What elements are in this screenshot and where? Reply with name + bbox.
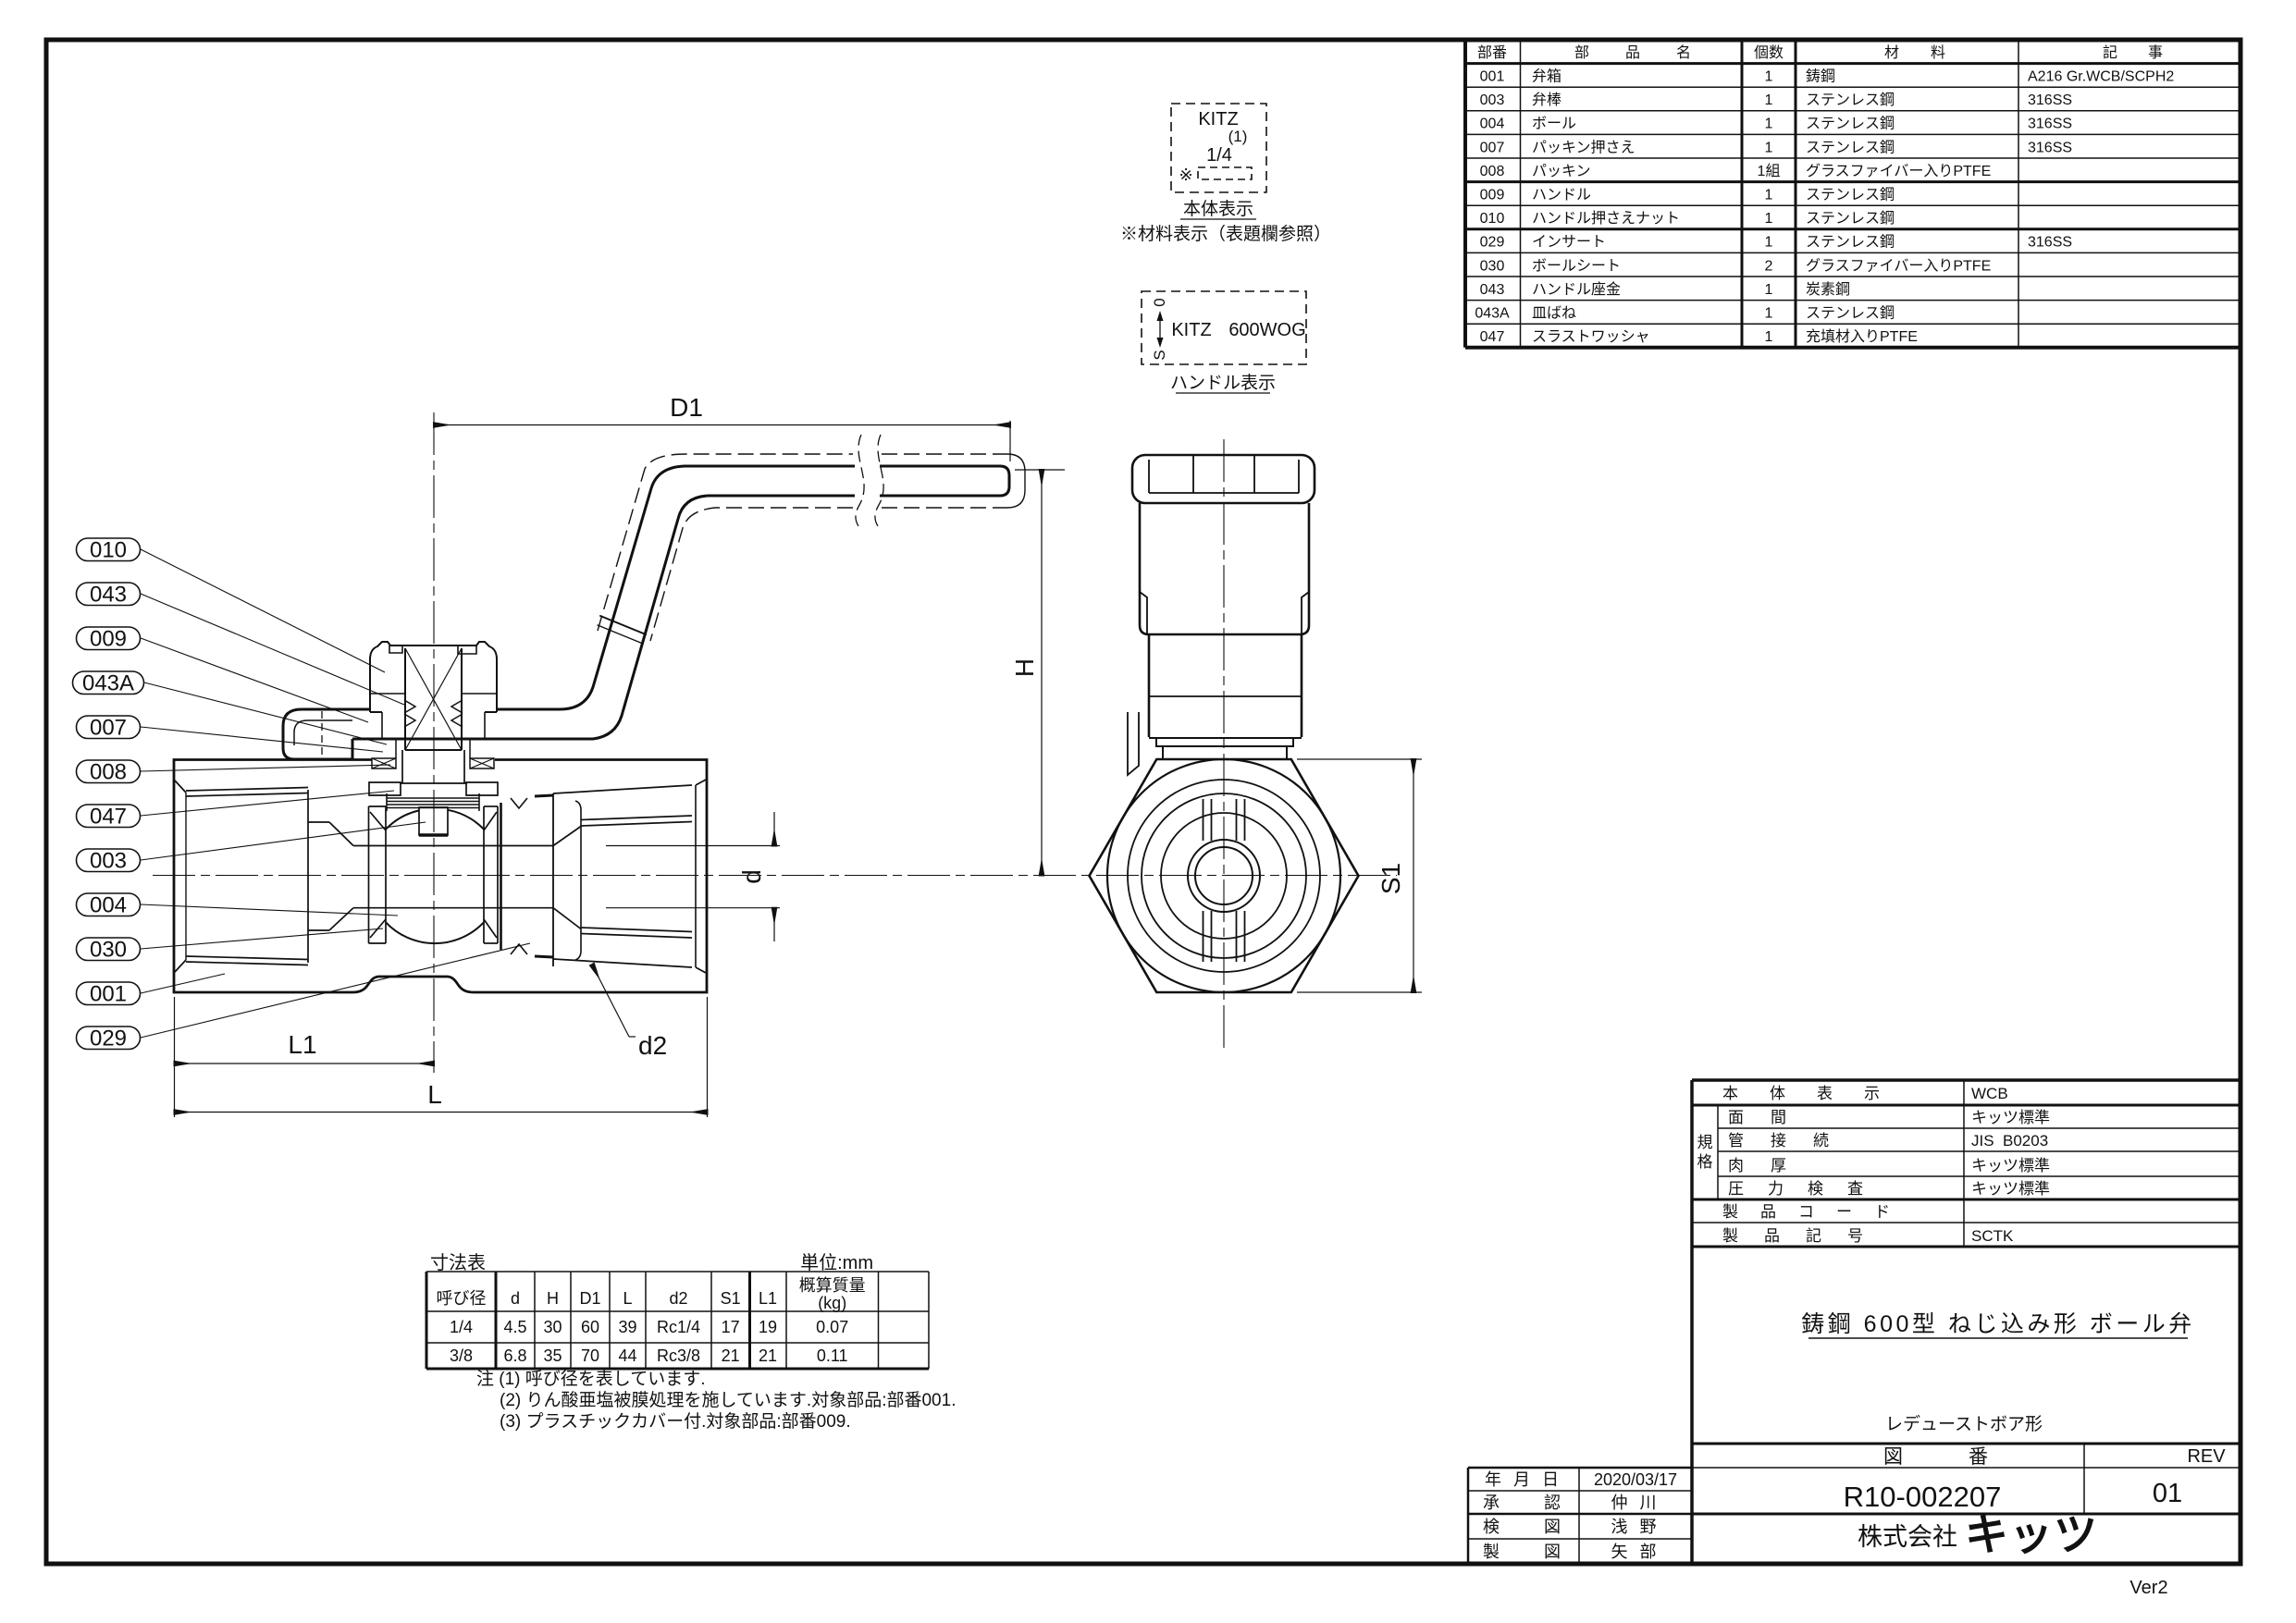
svg-text:ステンレス鋼: ステンレス鋼 [1806, 92, 1895, 108]
svg-text:スラストワッシャ: スラストワッシャ [1532, 329, 1650, 345]
svg-text:材: 材 [1884, 44, 1899, 61]
svg-text:部番: 部番 [1477, 44, 1507, 61]
svg-text:010: 010 [1480, 211, 1505, 227]
svg-text:※: ※ [1179, 166, 1192, 184]
svg-text:製品記号: 製品記号 [1722, 1227, 1889, 1245]
svg-text:003: 003 [1480, 92, 1505, 108]
svg-text:キッツ: キッツ [1965, 1510, 2098, 1559]
svg-text:注 (1) 呼び径を表しています.: 注 (1) 呼び径を表しています. [476, 1369, 706, 1389]
svg-text:浅 野: 浅 野 [1611, 1518, 1660, 1536]
svg-text:d: d [737, 869, 766, 884]
svg-text:001: 001 [1480, 69, 1505, 85]
svg-text:仲 川: 仲 川 [1611, 1494, 1660, 1512]
svg-text:043A: 043A [82, 671, 134, 696]
svg-text:鋳鋼: 鋳鋼 [1806, 68, 1835, 85]
svg-text:047: 047 [1480, 329, 1505, 345]
svg-text:肉厚: 肉厚 [1728, 1157, 1813, 1174]
svg-text:2020/03/17: 2020/03/17 [1594, 1470, 1677, 1489]
svg-text:1/4: 1/4 [450, 1318, 473, 1336]
svg-text:(kg): (kg) [818, 1294, 846, 1312]
svg-text:ステンレス鋼: ステンレス鋼 [1806, 210, 1895, 227]
svg-text:製品コード: 製品コード [1722, 1203, 1912, 1221]
svg-text:図: 図 [1883, 1446, 1903, 1468]
svg-text:1組: 1組 [1758, 163, 1781, 179]
svg-text:L1: L1 [288, 1030, 316, 1059]
svg-text:1: 1 [1765, 140, 1773, 155]
svg-text:矢 部: 矢 部 [1611, 1543, 1660, 1561]
svg-text:呼び径: 呼び径 [437, 1289, 487, 1308]
svg-text:S: S [1151, 350, 1168, 360]
svg-text:L: L [427, 1080, 442, 1109]
svg-text:規: 規 [1697, 1134, 1713, 1151]
svg-text:19: 19 [759, 1318, 777, 1336]
svg-text:品: 品 [1625, 45, 1640, 61]
svg-text:(3) プラスチックカバー付.対象部品:部番009.: (3) プラスチックカバー付.対象部品:部番009. [500, 1411, 851, 1432]
svg-text:316SS: 316SS [2028, 117, 2072, 132]
svg-text:単位:mm: 単位:mm [800, 1252, 873, 1273]
svg-text:ステンレス鋼: ステンレス鋼 [1806, 187, 1895, 203]
svg-text:弁箱: 弁箱 [1532, 68, 1562, 85]
svg-text:004: 004 [90, 893, 127, 918]
svg-text:01: 01 [2153, 1479, 2182, 1508]
svg-text:寸法表: 寸法表 [430, 1252, 486, 1273]
svg-text:1: 1 [1765, 188, 1773, 203]
svg-text:009: 009 [1480, 188, 1505, 203]
svg-text:面間: 面間 [1728, 1109, 1813, 1126]
svg-text:ステンレス鋼: ステンレス鋼 [1806, 305, 1895, 322]
svg-text:管接続: 管接続 [1728, 1132, 1856, 1150]
svg-text:029: 029 [90, 1027, 127, 1051]
svg-text:皿ばね: 皿ばね [1532, 305, 1576, 322]
svg-text:1: 1 [1765, 211, 1773, 227]
svg-text:029: 029 [1480, 235, 1505, 251]
svg-text:ハンドル: ハンドル [1532, 188, 1591, 203]
svg-text:043A: 043A [1475, 306, 1510, 322]
svg-text:(2) りん酸亜塩被膜処理を施しています.対象部品:部番00: (2) りん酸亜塩被膜処理を施しています.対象部品:部番001. [500, 1390, 956, 1410]
svg-text:名: 名 [1676, 44, 1691, 61]
svg-text:D1: D1 [670, 393, 703, 422]
svg-text:316SS: 316SS [2028, 140, 2072, 155]
svg-text:Rc3/8: Rc3/8 [657, 1346, 700, 1365]
svg-text:003: 003 [90, 849, 127, 874]
svg-text:事: 事 [2148, 44, 2163, 61]
svg-text:1: 1 [1765, 92, 1773, 108]
svg-text:0.11: 0.11 [817, 1346, 848, 1365]
svg-text:316SS: 316SS [2028, 92, 2072, 108]
svg-text:充填材入りPTFE: 充填材入りPTFE [1806, 328, 1918, 345]
svg-text:007: 007 [1480, 140, 1505, 155]
svg-text:010: 010 [90, 538, 127, 563]
svg-text:レデューストボア形: レデューストボア形 [1885, 1414, 2043, 1434]
svg-text:d2: d2 [669, 1289, 687, 1308]
svg-text:008: 008 [1480, 164, 1505, 179]
svg-text:パッキン: パッキン [1532, 164, 1591, 179]
svg-text:検 図: 検 図 [1483, 1518, 1564, 1536]
svg-text:1: 1 [1765, 117, 1773, 132]
svg-text:030: 030 [1480, 258, 1505, 274]
svg-text:3/8: 3/8 [450, 1346, 473, 1365]
svg-text:316SS: 316SS [2028, 235, 2072, 251]
svg-text:35: 35 [543, 1346, 562, 1365]
svg-text:1: 1 [1765, 69, 1773, 85]
svg-text:2: 2 [1765, 258, 1773, 274]
svg-text:L: L [623, 1289, 632, 1308]
svg-text:株式会社: 株式会社 [1858, 1523, 1957, 1551]
svg-text:S1: S1 [721, 1289, 741, 1308]
svg-text:d2: d2 [638, 1031, 667, 1060]
svg-text:本体表示: 本体表示 [1183, 199, 1253, 219]
svg-text:WCB: WCB [1971, 1085, 2008, 1102]
svg-text:概算質量: 概算質量 [799, 1276, 866, 1295]
svg-text:4.5: 4.5 [503, 1318, 526, 1336]
svg-text:004: 004 [1480, 117, 1505, 132]
svg-text:21: 21 [759, 1346, 777, 1365]
svg-text:グラスファイバー入りPTFE: グラスファイバー入りPTFE [1806, 257, 1991, 274]
svg-text:H: H [1010, 658, 1039, 677]
svg-text:REV: REV [2187, 1446, 2226, 1467]
svg-text:格: 格 [1697, 1153, 1713, 1171]
svg-text:ボール: ボール [1532, 116, 1576, 132]
svg-text:030: 030 [90, 938, 127, 963]
svg-text:Rc1/4: Rc1/4 [657, 1318, 700, 1336]
svg-text:6.8: 6.8 [503, 1346, 526, 1365]
svg-text:600WOG: 600WOG [1228, 320, 1305, 340]
svg-text:番: 番 [1969, 1446, 1988, 1468]
svg-text:JIS B0203: JIS B0203 [1971, 1132, 2048, 1150]
svg-text:KITZ: KITZ [1198, 109, 1238, 129]
svg-text:KITZ: KITZ [1171, 320, 1211, 340]
svg-text:39: 39 [618, 1318, 636, 1336]
svg-text:記: 記 [2103, 44, 2117, 61]
svg-text:1: 1 [1765, 329, 1773, 345]
svg-text:1: 1 [1765, 306, 1773, 322]
svg-text:製 図: 製 図 [1483, 1543, 1564, 1561]
svg-text:キッツ標準: キッツ標準 [1971, 1157, 2050, 1174]
svg-text:21: 21 [722, 1346, 740, 1365]
svg-text:1/4: 1/4 [1206, 145, 1232, 166]
svg-text:弁棒: 弁棒 [1532, 92, 1562, 108]
svg-text:承 認: 承 認 [1483, 1494, 1564, 1512]
svg-text:043: 043 [1480, 282, 1505, 298]
svg-text:インサート: インサート [1532, 235, 1606, 251]
svg-text:ハンドル表示: ハンドル表示 [1170, 373, 1276, 393]
svg-text:17: 17 [722, 1318, 740, 1336]
svg-text:S1: S1 [1376, 863, 1405, 894]
svg-text:鋳鋼 600型 ねじ込み形 ボール弁: 鋳鋼 600型 ねじ込み形 ボール弁 [1801, 1311, 2195, 1337]
svg-text:70: 70 [581, 1346, 599, 1365]
svg-text:1: 1 [1765, 235, 1773, 251]
svg-text:キッツ標準: キッツ標準 [1971, 1180, 2050, 1198]
svg-text:ハンドル押さえナット: ハンドル押さえナット [1532, 210, 1680, 227]
svg-text:60: 60 [581, 1318, 599, 1336]
svg-text:グラスファイバー入りPTFE: グラスファイバー入りPTFE [1806, 163, 1991, 179]
svg-text:007: 007 [90, 716, 127, 741]
svg-text:Ver2: Ver2 [2129, 1578, 2167, 1598]
svg-text:H: H [547, 1289, 559, 1308]
svg-text:0: 0 [1151, 298, 1168, 306]
svg-text:SCTK: SCTK [1971, 1227, 2014, 1245]
svg-text:(1): (1) [1228, 128, 1248, 145]
svg-text:ボールシート: ボールシート [1532, 257, 1621, 274]
svg-text:043: 043 [90, 583, 127, 608]
svg-text:※材料表示（表題欄参照）: ※材料表示（表題欄参照） [1120, 224, 1331, 244]
svg-text:本体表示: 本体表示 [1722, 1085, 1911, 1102]
svg-text:d: d [511, 1289, 520, 1308]
svg-text:L1: L1 [759, 1289, 777, 1308]
svg-text:44: 44 [618, 1346, 636, 1365]
svg-text:30: 30 [543, 1318, 562, 1336]
svg-text:009: 009 [90, 627, 127, 652]
svg-text:0.07: 0.07 [816, 1318, 848, 1336]
svg-text:炭素鋼: 炭素鋼 [1806, 281, 1850, 298]
svg-text:R10-002207: R10-002207 [1844, 1481, 2002, 1513]
svg-text:料: 料 [1931, 44, 1945, 61]
svg-text:ハンドル座金: ハンドル座金 [1532, 281, 1621, 298]
svg-text:008: 008 [90, 760, 127, 785]
svg-text:ステンレス鋼: ステンレス鋼 [1806, 116, 1895, 132]
svg-text:個数: 個数 [1754, 44, 1784, 61]
svg-text:年 月 日: 年 月 日 [1485, 1470, 1562, 1489]
svg-text:圧力検査: 圧力検査 [1728, 1180, 1887, 1198]
svg-text:ステンレス鋼: ステンレス鋼 [1806, 234, 1895, 251]
svg-text:A216 Gr.WCB/SCPH2: A216 Gr.WCB/SCPH2 [2028, 69, 2174, 85]
svg-text:047: 047 [90, 805, 127, 830]
svg-text:1: 1 [1765, 282, 1773, 298]
svg-text:キッツ標準: キッツ標準 [1971, 1109, 2050, 1126]
svg-text:ステンレス鋼: ステンレス鋼 [1806, 139, 1895, 155]
svg-text:D1: D1 [579, 1289, 600, 1308]
svg-text:001: 001 [90, 982, 127, 1007]
svg-text:パッキン押さえ: パッキン押さえ [1532, 139, 1636, 155]
svg-text:部: 部 [1574, 44, 1589, 61]
